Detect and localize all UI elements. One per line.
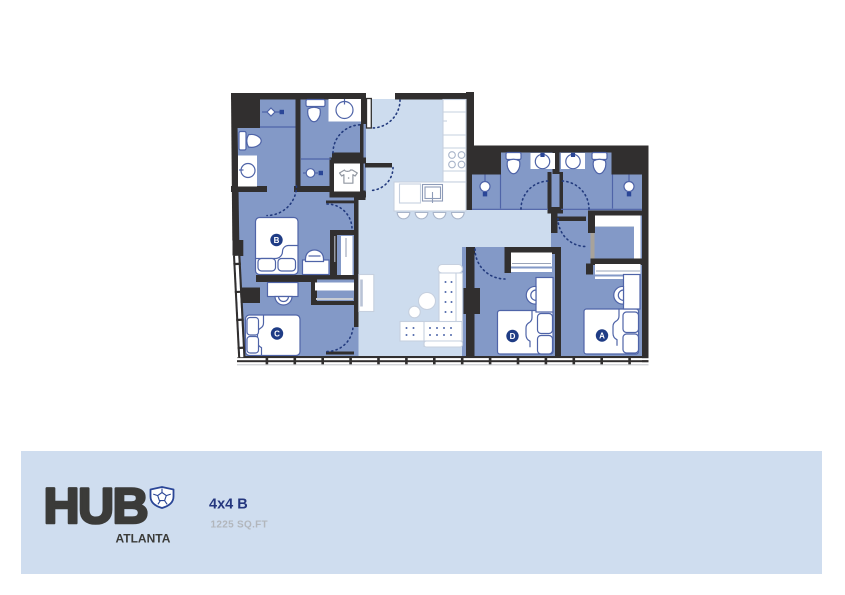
svg-text:B: B bbox=[274, 236, 280, 245]
svg-text:1225 SQ.FT: 1225 SQ.FT bbox=[211, 520, 268, 531]
svg-text:D: D bbox=[510, 332, 516, 341]
svg-text:4x4 B: 4x4 B bbox=[209, 497, 248, 513]
svg-text:HUB: HUB bbox=[44, 478, 148, 534]
svg-text:ATLANTA: ATLANTA bbox=[116, 532, 171, 546]
svg-text:A: A bbox=[599, 332, 605, 341]
svg-text:C: C bbox=[274, 330, 280, 339]
